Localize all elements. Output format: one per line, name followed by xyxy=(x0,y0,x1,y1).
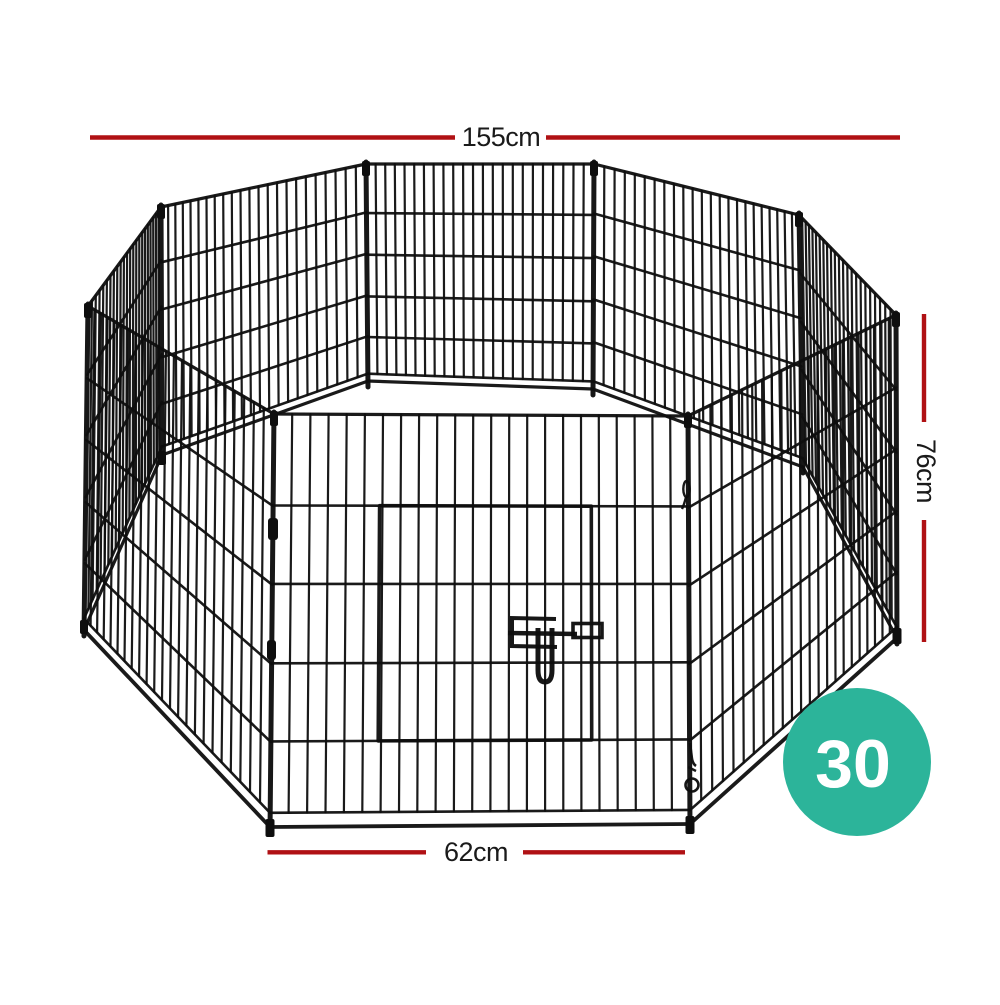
svg-text:76cm: 76cm xyxy=(911,439,941,503)
svg-text:62cm: 62cm xyxy=(444,837,508,867)
svg-text:155cm: 155cm xyxy=(462,122,541,152)
svg-text:30: 30 xyxy=(815,726,891,802)
